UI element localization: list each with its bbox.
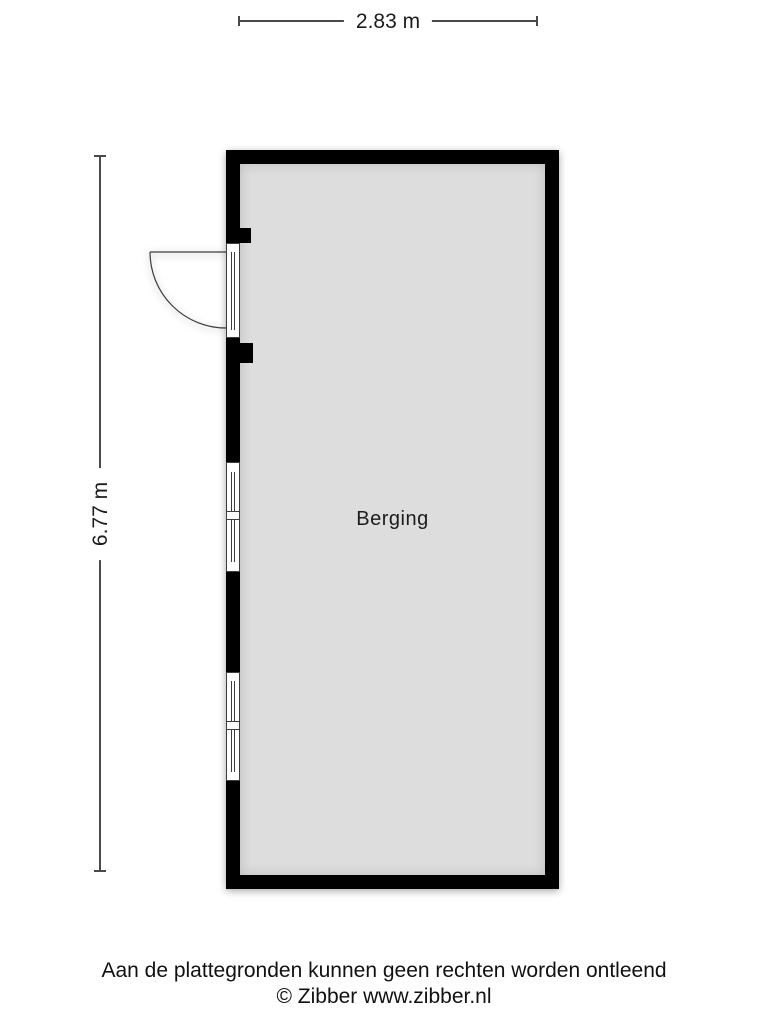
height-dimension: 6.77 m [92,155,109,872]
window-mullion [227,721,239,730]
door-panel [231,252,235,330]
dimension-tick-left [238,16,240,26]
copyright-text: © Zibber www.zibber.nl [0,984,768,1010]
disclaimer-text: Aan de plattegronden kunnen geen rechten… [0,958,768,984]
wall-right [545,150,559,889]
width-dimension: 2.83 m [238,12,538,31]
floorplan-room: Berging [226,150,559,889]
wall-top [226,150,559,164]
dimension-tick-right [536,16,538,26]
window [226,462,240,572]
door-opening [226,243,240,338]
window-mullion [227,511,239,520]
window [226,672,240,781]
dimension-tick-bottom [94,870,106,872]
width-dimension-label: 2.83 m [344,10,432,34]
wall-pier-below-door [240,343,253,363]
height-dimension-label: 6.77 m [89,467,113,559]
room-label: Berging [356,508,428,531]
door-swing-arc [146,248,228,334]
door-arc [150,252,226,328]
wall-bottom [226,875,559,889]
wall-pier-above-door [240,228,251,243]
room-floor: Berging [240,164,545,875]
footer: Aan de plattegronden kunnen geen rechten… [0,958,768,1010]
dimension-tick-top [94,155,106,157]
